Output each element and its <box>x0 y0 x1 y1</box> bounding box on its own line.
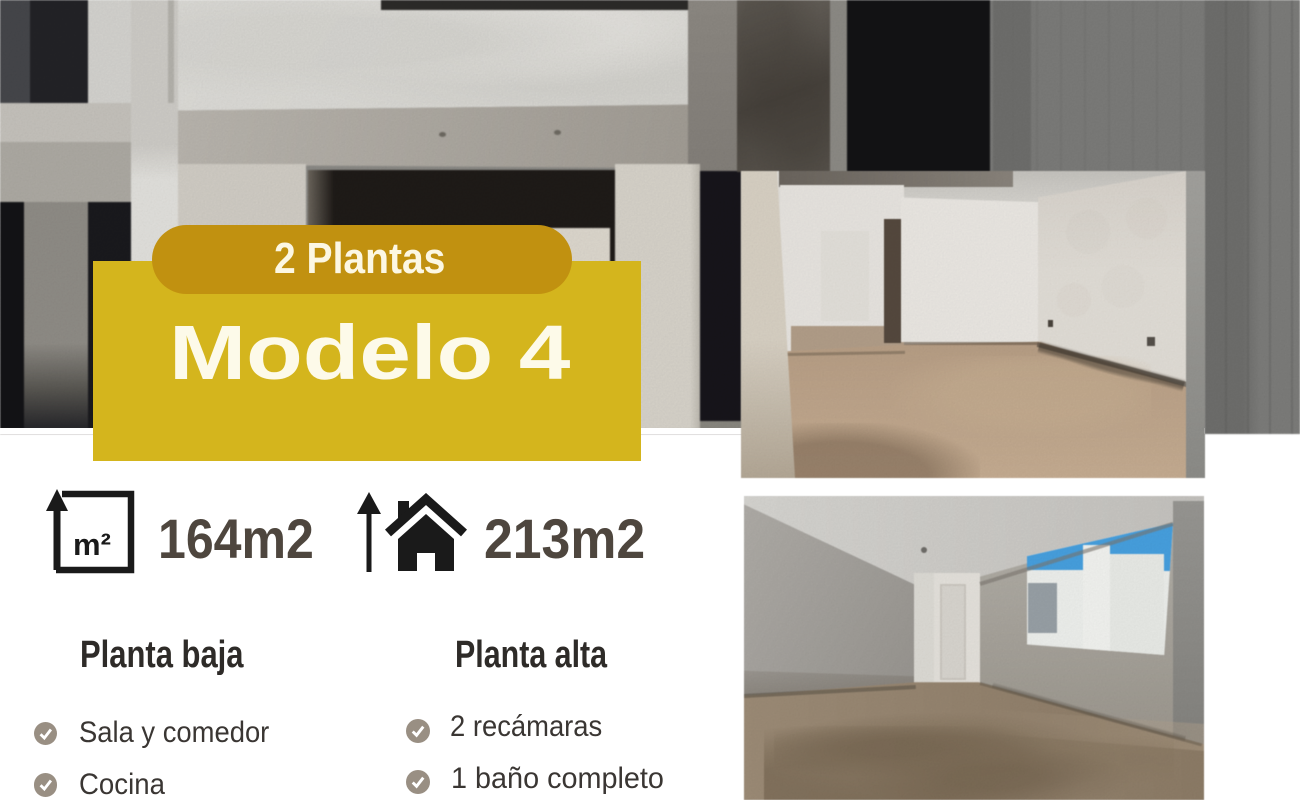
svg-text:m²: m² <box>73 527 111 562</box>
